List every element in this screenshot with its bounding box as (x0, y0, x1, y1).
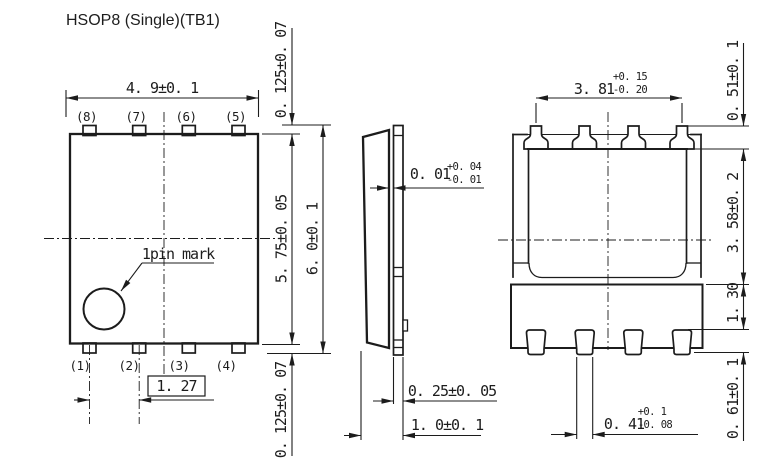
dim-package-height-text: 1. 0±0. 1 (411, 416, 484, 434)
dim-pin-protrusion-top: 0. 125±0. 07 (272, 22, 331, 125)
dim-standoff-tol-plus: +0. 04 (447, 161, 482, 173)
package-outline-drawing: HSOP8 (Single)(TB1) (8) (7) (6) (0, 0, 765, 474)
pin1-mark-callout: 1pin mark (121, 245, 215, 291)
pin1-mark-circle (84, 289, 125, 330)
side-view-lead (394, 126, 408, 356)
dim-standoff-value: 0. 01 (410, 165, 451, 183)
dim-lead-span-tol-plus: +0. 15 (613, 71, 648, 83)
pin-label-3: (3) (168, 358, 189, 373)
hsop8-drawing-canvas: HSOP8 (Single)(TB1) (8) (7) (6) (0, 0, 765, 474)
pin-label-5: (5) (225, 109, 246, 124)
dim-standoff-tol-minus: -0. 01 (447, 174, 482, 186)
pin-label-1: (1) (69, 358, 90, 373)
dim-pad-height-text: 1. 30 (724, 282, 742, 323)
top-view: (8) (7) (6) (5) (1) (2) (3) (4) 1pin mar… (44, 22, 331, 458)
dim-lead-width-tol-plus: +0. 1 (638, 406, 667, 418)
drawing-title: HSOP8 (Single)(TB1) (66, 12, 220, 29)
dim-bottom-lead-height-text: 0. 61±0. 1 (724, 358, 742, 439)
dim-body-width-text: 4. 9±0. 1 (126, 79, 199, 97)
top-view-pin-labels: (8) (7) (6) (5) (1) (2) (3) (4) (69, 109, 246, 373)
side-view: 0. 01 +0. 04 -0. 01 0. 25±0. 05 1. 0±0. … (344, 126, 497, 441)
pin-label-7: (7) (125, 109, 146, 124)
dim-lead-span-value: 3. 81 (574, 80, 615, 98)
dim-body-length-text: 5. 75±0. 05 (273, 195, 291, 283)
back-view-mold-bottom (529, 263, 686, 278)
dim-lead-width: 0. 41 +0. 1 -0. 08 (551, 357, 698, 439)
dim-lead-span: 3. 81 +0. 15 -0. 20 (536, 71, 682, 123)
dim-pin-pitch: 1. 27 (74, 376, 214, 400)
pin-label-6: (6) (175, 109, 196, 124)
back-view-bottom-leads (527, 330, 692, 355)
dim-total-length-text: 6. 0±0. 1 (304, 202, 322, 275)
back-view-top-leads (524, 126, 694, 149)
side-view-body (363, 130, 389, 348)
dim-pin-protrusion-bottom: 0. 125±0. 07 (272, 354, 292, 459)
dim-pin-protrusion-bottom-text: 0. 125±0. 07 (272, 362, 290, 458)
dim-lead-thickness-text: 0. 25±0. 05 (408, 382, 496, 400)
dim-body-height-text: 3. 58±0. 2 (724, 173, 742, 253)
pin-label-8: (8) (76, 109, 97, 124)
back-view: 3. 81 +0. 15 -0. 20 0. 51±0. 1 3. 58±0. … (498, 40, 749, 441)
dim-lead-width-tol-minus: -0. 08 (638, 419, 673, 431)
dim-lead-span-tol-minus: -0. 20 (613, 84, 648, 96)
dim-pin-pitch-text: 1. 27 (156, 377, 196, 395)
pin1-mark-label: 1pin mark (142, 245, 215, 263)
dim-body-length: 5. 75±0. 05 (262, 134, 300, 345)
dim-top-lead-height-text: 0. 51±0. 1 (724, 40, 742, 121)
dim-pin-protrusion-top-text: 0. 125±0. 07 (272, 22, 290, 118)
pin-label-4: (4) (215, 358, 236, 373)
pin-label-2: (2) (118, 358, 139, 373)
dim-standoff: 0. 01 +0. 04 -0. 01 (370, 161, 484, 188)
back-view-outer-outline (513, 135, 701, 278)
